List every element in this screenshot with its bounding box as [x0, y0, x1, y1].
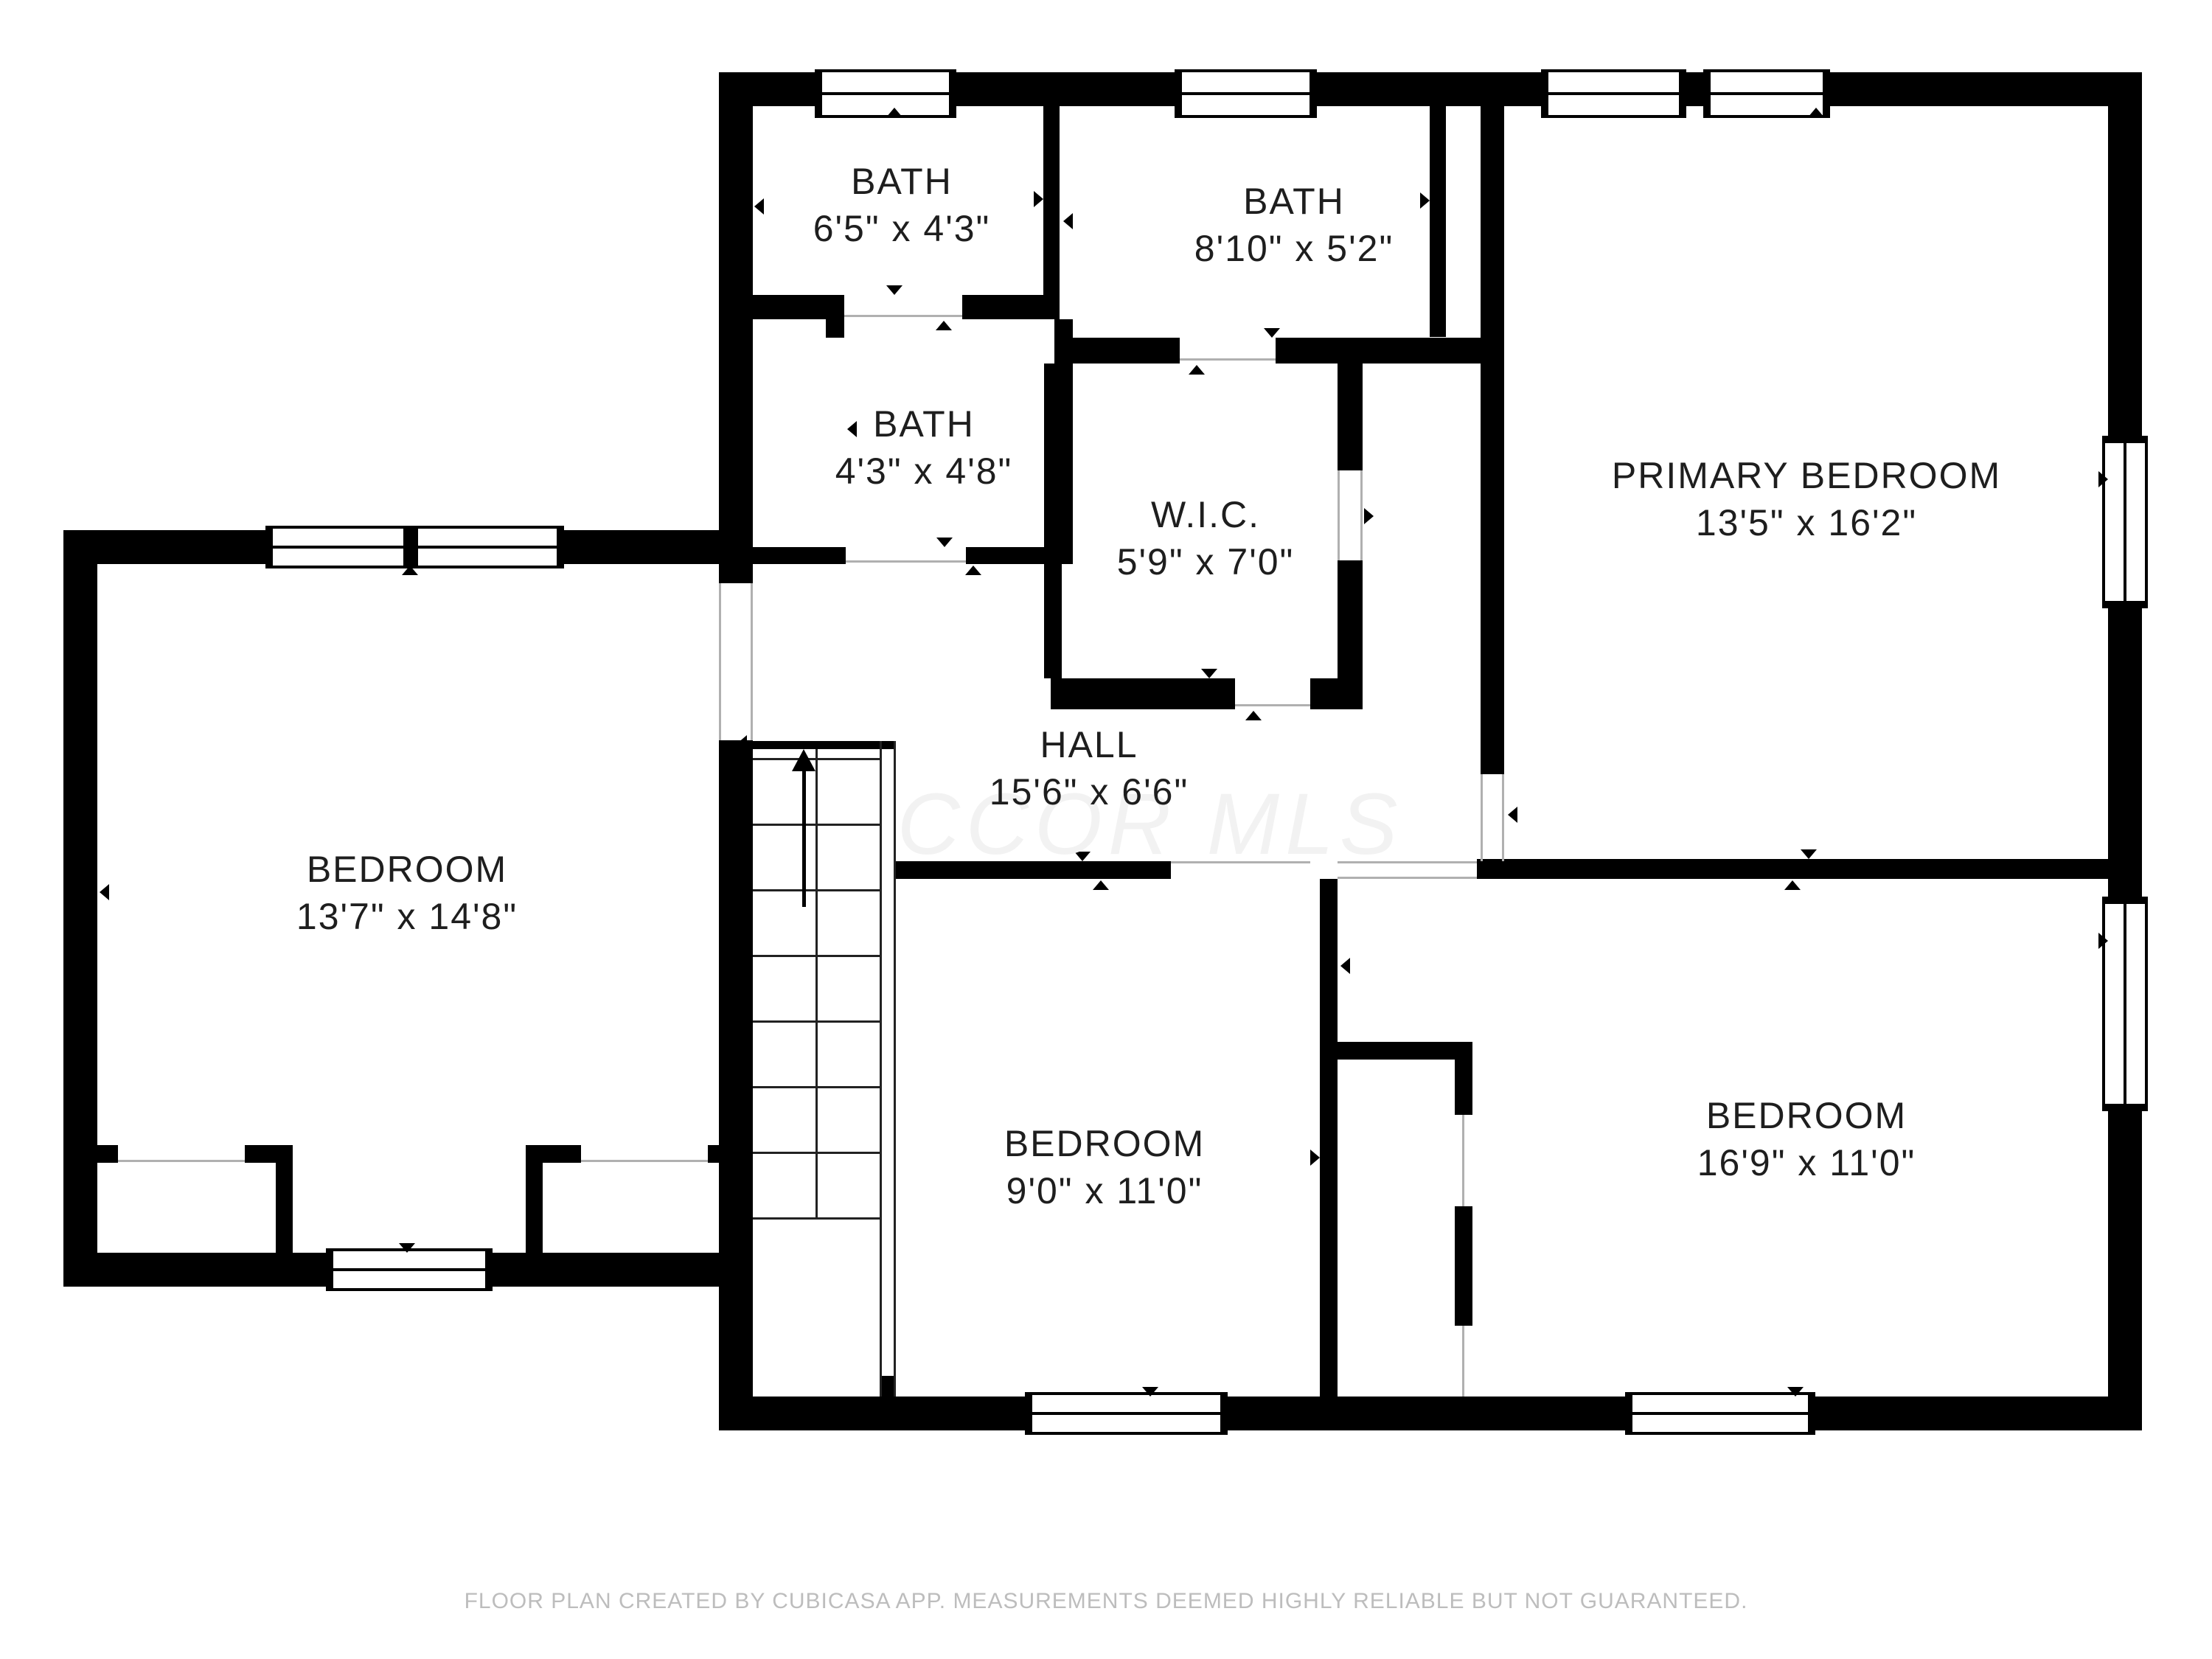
door-opening-line [1502, 774, 1504, 861]
door-swing-triangle-icon [1264, 328, 1280, 338]
door-opening-line [1462, 1326, 1464, 1397]
door-opening-line [1462, 1115, 1464, 1206]
room-label-bedroom-bottom-right: BEDROOM 16'9" x 11'0" [1697, 1092, 1916, 1186]
door-swing-triangle-icon [1045, 425, 1054, 442]
stair-tread [753, 824, 880, 826]
door-swing-triangle-icon [936, 321, 952, 330]
stair-tread [753, 1086, 880, 1088]
door-opening-line [844, 315, 962, 317]
stair-tread [753, 1217, 880, 1220]
room-dims: 13'5" x 16'2" [1612, 499, 2001, 546]
door-swing-triangle-icon [1142, 1387, 1158, 1397]
door-swing-triangle-icon [402, 566, 418, 575]
door-swing-triangle-icon [1310, 1150, 1320, 1166]
door-swing-triangle-icon [886, 285, 902, 295]
door-opening-line [1180, 358, 1276, 361]
room-dims: 16'9" x 11'0" [1697, 1139, 1916, 1186]
room-label-hall: HALL 15'6" x 6'6" [990, 721, 1189, 815]
wall-segment [1044, 364, 1062, 678]
stair-tread [753, 758, 880, 760]
wall-segment [1455, 1060, 1472, 1115]
door-swing-triangle-icon [1340, 958, 1350, 974]
window-icon [326, 1248, 493, 1291]
stair-rail-line [815, 749, 818, 1217]
room-dims: 13'7" x 14'8" [296, 893, 518, 940]
wall-segment [1338, 560, 1363, 678]
room-label-bath-middle: BATH 4'3" x 4'8" [835, 400, 1013, 495]
window-icon [1025, 1392, 1228, 1435]
wall-segment [1060, 338, 1180, 364]
stair-up-arrow-icon [792, 749, 815, 771]
floor-plan: CCOR MLS BATH 6'5" x 4'3" BATH 8'10" x 5… [0, 0, 2212, 1659]
door-swing-triangle-icon [1201, 669, 1217, 678]
wall-segment [719, 564, 753, 583]
wall-segment [708, 1145, 753, 1163]
wall-segment [826, 295, 844, 338]
footer-disclaimer: FLOOR PLAN CREATED BY CUBICASA APP. MEAS… [465, 1589, 1748, 1614]
room-name: BEDROOM [1004, 1120, 1205, 1167]
room-label-bath-top-left: BATH 6'5" x 4'3" [813, 158, 991, 252]
room-name: BEDROOM [296, 846, 518, 893]
window-glass-line [2124, 443, 2126, 601]
wall-segment [1320, 879, 1338, 1397]
door-opening-line [719, 583, 721, 740]
room-dims: 6'5" x 4'3" [813, 205, 991, 252]
wall-segment [63, 564, 97, 1287]
window-glass-line [273, 546, 403, 549]
door-opening-line [1235, 704, 1310, 706]
door-swing-triangle-icon [737, 735, 747, 751]
window-glass-line [822, 92, 949, 95]
wall-segment [1430, 101, 1446, 337]
door-swing-triangle-icon [965, 566, 981, 575]
door-swing-triangle-icon [1364, 508, 1374, 524]
window-icon [1175, 69, 1317, 118]
room-dims: 15'6" x 6'6" [990, 768, 1189, 815]
door-opening-line [1338, 877, 1477, 879]
window-glass-line [1632, 1412, 1808, 1415]
wall-segment [719, 1397, 2142, 1430]
door-opening-line [118, 1160, 245, 1162]
window-icon [265, 526, 411, 568]
room-name: BATH [835, 400, 1013, 448]
door-opening-line [581, 1160, 708, 1162]
wall-segment [63, 1145, 118, 1163]
wall-segment [1481, 101, 1504, 774]
wall-segment [753, 547, 846, 564]
wall-segment [719, 72, 753, 564]
window-glass-line [1032, 1412, 1220, 1415]
wall-segment [276, 1163, 293, 1253]
room-label-wic: W.I.C. 5'9" x 7'0" [1117, 491, 1295, 585]
room-dims: 8'10" x 5'2" [1194, 225, 1394, 272]
door-swing-triangle-icon [2098, 471, 2108, 487]
door-opening-line [846, 560, 966, 563]
stair-tread [753, 1020, 880, 1023]
door-swing-triangle-icon [1189, 365, 1205, 375]
room-name: W.I.C. [1117, 491, 1295, 538]
window-icon [2102, 436, 2148, 608]
window-icon [2102, 897, 2148, 1111]
stair-tread [753, 889, 880, 891]
room-label-bath-top-middle: BATH 8'10" x 5'2" [1194, 178, 1394, 272]
room-name: BATH [1194, 178, 1394, 225]
window-glass-line [418, 546, 557, 549]
window-glass-line [2124, 904, 2126, 1104]
wall-segment [753, 295, 826, 319]
door-swing-triangle-icon [100, 884, 109, 900]
stair-tread [753, 1152, 880, 1154]
window-glass-line [1182, 92, 1310, 95]
door-swing-triangle-icon [1784, 880, 1801, 890]
room-dims: 9'0" x 11'0" [1004, 1167, 1205, 1214]
door-swing-triangle-icon [1420, 192, 1430, 209]
window-icon [1541, 69, 1686, 118]
stair-rail-line [894, 741, 896, 1397]
window-icon [1625, 1392, 1815, 1435]
wall-segment [1051, 678, 1235, 709]
door-swing-triangle-icon [1245, 711, 1262, 720]
room-name: HALL [990, 721, 1189, 768]
room-dims: 5'9" x 7'0" [1117, 538, 1295, 585]
room-name: PRIMARY BEDROOM [1612, 452, 2001, 499]
door-swing-triangle-icon [1508, 807, 1517, 823]
door-opening-line [751, 583, 753, 740]
wall-segment [1477, 859, 2142, 879]
room-name: BATH [813, 158, 991, 205]
stair-rail-line [880, 741, 882, 1397]
wall-segment [2108, 106, 2142, 1430]
door-swing-triangle-icon [2098, 933, 2108, 949]
door-swing-triangle-icon [1808, 108, 1824, 117]
wall-segment [1276, 338, 1481, 364]
window-glass-line [1548, 92, 1679, 95]
wall-segment [526, 1163, 543, 1253]
door-opening-line [1338, 470, 1340, 560]
window-icon [815, 69, 956, 118]
door-swing-triangle-icon [399, 1243, 415, 1253]
room-name: BEDROOM [1697, 1092, 1916, 1139]
door-swing-triangle-icon [1801, 849, 1817, 859]
stair-tread [753, 955, 880, 957]
door-swing-triangle-icon [1093, 880, 1109, 890]
wall-segment [753, 741, 896, 749]
door-opening-line [1481, 774, 1483, 861]
wall-segment [245, 1145, 293, 1163]
door-swing-triangle-icon [754, 198, 764, 215]
door-swing-triangle-icon [936, 538, 953, 547]
room-label-primary-bedroom: PRIMARY BEDROOM 13'5" x 16'2" [1612, 452, 2001, 546]
room-dims: 4'3" x 4'8" [835, 448, 1013, 495]
window-glass-line [333, 1268, 485, 1271]
wall-segment [719, 740, 753, 1397]
wall-segment [526, 1145, 581, 1163]
window-glass-line [1711, 92, 1823, 95]
wall-segment [1310, 678, 1363, 709]
room-label-bedroom-bottom-middle: BEDROOM 9'0" x 11'0" [1004, 1120, 1205, 1214]
door-swing-triangle-icon [1787, 1387, 1804, 1397]
wall-segment [1043, 101, 1060, 319]
wall-segment [1338, 1042, 1472, 1060]
stair-direction-arrow [802, 770, 806, 907]
door-swing-triangle-icon [1034, 191, 1043, 207]
wall-segment [1338, 364, 1363, 470]
door-swing-triangle-icon [886, 108, 902, 117]
wall-segment [1455, 1206, 1472, 1326]
door-swing-triangle-icon [1063, 213, 1073, 229]
room-label-bedroom-left: BEDROOM 13'7" x 14'8" [296, 846, 518, 940]
window-icon [411, 526, 564, 568]
door-opening-line [1360, 470, 1363, 560]
